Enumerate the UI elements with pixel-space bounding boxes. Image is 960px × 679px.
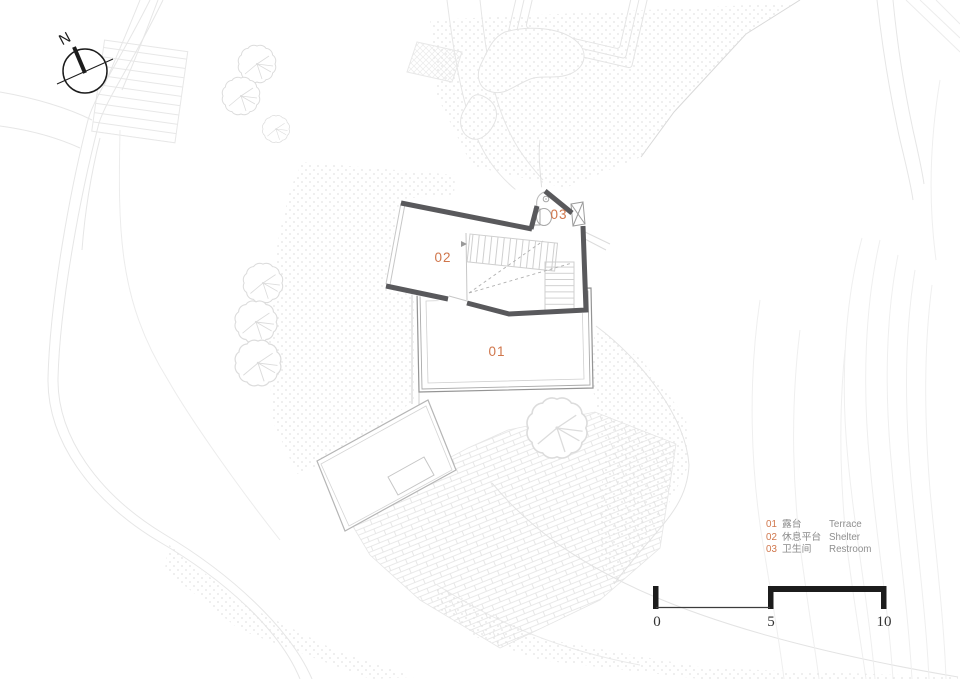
legend-item-terrace: 01 露台 Terrace bbox=[766, 519, 871, 532]
label-shelter-02: 02 bbox=[434, 250, 451, 265]
legend-number: 03 bbox=[766, 544, 782, 557]
legend-label-en: Restroom bbox=[829, 544, 871, 557]
legend-item-restroom: 03 卫生间 Restroom bbox=[766, 544, 871, 557]
legend: 01 露台 Terrace 02 休息平台 Shelter 03 卫生间 Res… bbox=[766, 519, 871, 557]
scale-tick-0 bbox=[653, 586, 659, 609]
scale-label-5: 5 bbox=[767, 614, 775, 630]
label-terrace-01: 01 bbox=[488, 344, 505, 359]
site-plan-page: 01 02 03 N 0 5 10 01 露台 Terrace 02 休息平台 … bbox=[0, 0, 960, 679]
scale-label-0: 0 bbox=[653, 614, 661, 630]
legend-label-en: Shelter bbox=[829, 532, 860, 545]
label-restroom-03: 03 bbox=[550, 207, 567, 222]
scale-bar-segment bbox=[771, 586, 883, 592]
legend-label-zh: 露台 bbox=[782, 519, 829, 532]
legend-label-zh: 休息平台 bbox=[782, 532, 829, 545]
legend-number: 02 bbox=[766, 532, 782, 545]
legend-number: 01 bbox=[766, 519, 782, 532]
site-plan-canvas: 01 02 03 N 0 5 10 bbox=[0, 0, 960, 679]
legend-label-zh: 卫生间 bbox=[782, 544, 829, 557]
legend-item-shelter: 02 休息平台 Shelter bbox=[766, 532, 871, 545]
scale-label-10: 10 bbox=[877, 614, 892, 630]
legend-label-en: Terrace bbox=[829, 519, 862, 532]
